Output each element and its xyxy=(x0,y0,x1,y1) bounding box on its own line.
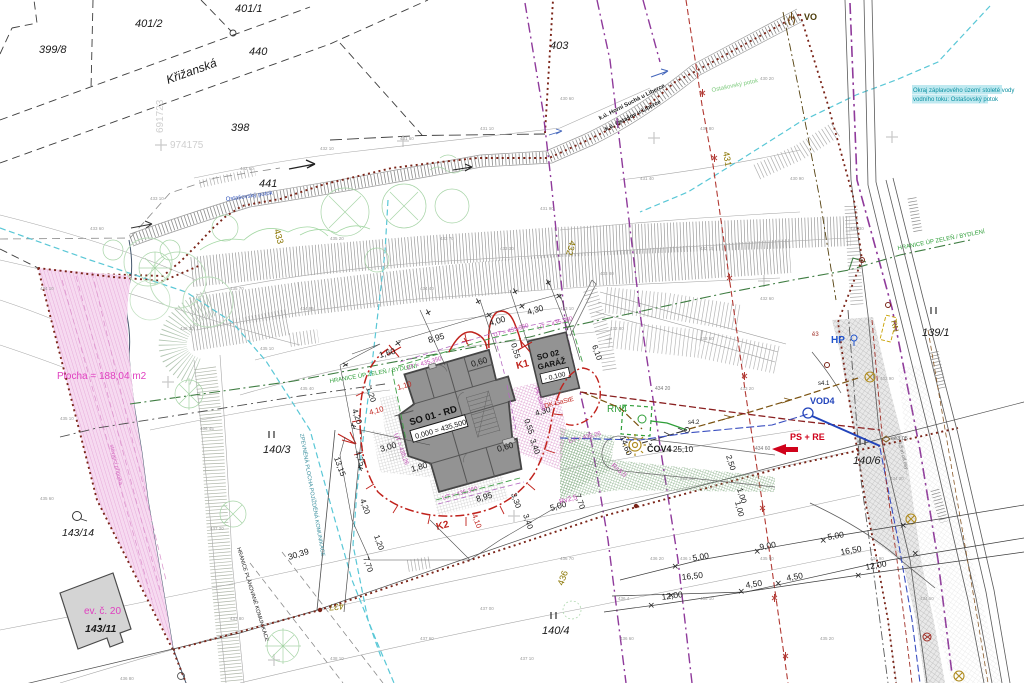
svg-text:ev. č. 20: ev. č. 20 xyxy=(84,606,121,617)
svg-text:435 60: 435 60 xyxy=(680,476,694,481)
svg-text:431 10: 431 10 xyxy=(480,126,494,131)
svg-text:434 40: 434 40 xyxy=(420,286,434,291)
svg-text:437 20: 437 20 xyxy=(210,526,224,531)
svg-text:436 4: 436 4 xyxy=(618,596,630,601)
svg-text:434 60: 434 60 xyxy=(755,446,771,452)
svg-text:PS + RE: PS + RE xyxy=(790,432,825,442)
svg-text:431 60: 431 60 xyxy=(400,136,414,141)
svg-text:140/3: 140/3 xyxy=(263,444,291,456)
svg-text:436 1: 436 1 xyxy=(680,556,692,561)
svg-text:434 50: 434 50 xyxy=(920,596,934,601)
svg-text:143/14: 143/14 xyxy=(62,527,94,539)
svg-text:433 10: 433 10 xyxy=(560,306,574,311)
svg-text:435 20: 435 20 xyxy=(330,236,344,241)
svg-text:432 60: 432 60 xyxy=(760,296,774,301)
svg-text:VOD4: VOD4 xyxy=(810,396,835,406)
svg-text:398: 398 xyxy=(231,122,250,134)
svg-text:435 10: 435 10 xyxy=(60,416,74,421)
svg-text:974175: 974175 xyxy=(170,140,204,151)
svg-text:VO: VO xyxy=(804,12,817,22)
svg-text:433 10: 433 10 xyxy=(150,196,164,201)
svg-text:Plocha = 188,04 m2: Plocha = 188,04 m2 xyxy=(57,371,147,382)
svg-text:432 15: 432 15 xyxy=(700,246,714,251)
svg-text:437 10: 437 10 xyxy=(520,656,534,661)
svg-text:vodního toku: Ostašovský potok: vodního toku: Ostašovský potok xyxy=(913,97,999,103)
svg-text:440: 440 xyxy=(249,46,268,58)
svg-text:437 80: 437 80 xyxy=(230,616,244,621)
svg-text:435 70: 435 70 xyxy=(230,286,244,291)
svg-text:438 10: 438 10 xyxy=(330,656,344,661)
svg-text:431 40: 431 40 xyxy=(640,176,654,181)
svg-text:434 20: 434 20 xyxy=(890,476,904,481)
svg-text:ě3: ě3 xyxy=(812,332,819,338)
svg-text:436 10: 436 10 xyxy=(180,326,194,331)
svg-text:437 60: 437 60 xyxy=(420,636,434,641)
svg-text:430 60: 430 60 xyxy=(560,96,574,101)
svg-text:431 90: 431 90 xyxy=(540,206,554,211)
svg-text:433 80: 433 80 xyxy=(600,271,614,276)
svg-text:433 60: 433 60 xyxy=(90,226,104,231)
svg-text:436 10: 436 10 xyxy=(700,596,714,601)
svg-text:435 80: 435 80 xyxy=(760,556,774,561)
svg-text:430 20: 430 20 xyxy=(760,76,774,81)
svg-text:430 90: 430 90 xyxy=(790,176,804,181)
svg-text:433 60: 433 60 xyxy=(700,336,714,341)
svg-text:140/4: 140/4 xyxy=(542,625,570,637)
svg-text:432 90: 432 90 xyxy=(880,376,894,381)
svg-text:431 30: 431 30 xyxy=(850,226,864,231)
svg-text:HP: HP xyxy=(831,335,845,346)
svg-text:432 80: 432 80 xyxy=(610,326,624,331)
svg-text:401/2: 401/2 xyxy=(135,18,163,30)
svg-text:435 60: 435 60 xyxy=(40,496,54,501)
svg-text:434 90: 434 90 xyxy=(870,556,884,561)
svg-text:436 70: 436 70 xyxy=(560,556,574,561)
svg-text:eě3,05: eě3,05 xyxy=(891,436,908,442)
svg-text:435 10: 435 10 xyxy=(260,346,274,351)
svg-text:436 80: 436 80 xyxy=(120,676,134,681)
svg-text:25,10: 25,10 xyxy=(673,445,694,454)
svg-text:ČOV4: ČOV4 xyxy=(647,443,672,454)
svg-text:399/8: 399/8 xyxy=(39,44,67,56)
svg-text:435 20: 435 20 xyxy=(820,636,834,641)
svg-text:430 80: 430 80 xyxy=(700,126,714,131)
svg-text:433 70: 433 70 xyxy=(440,236,454,241)
svg-text:441: 441 xyxy=(259,178,277,190)
svg-text:434 95: 434 95 xyxy=(300,306,314,311)
svg-text:403: 403 xyxy=(550,40,569,52)
svg-text:436 45: 436 45 xyxy=(200,426,214,431)
svg-text:434 10: 434 10 xyxy=(40,286,54,291)
svg-text:Okraj záplavového území stolet: Okraj záplavového území stoleté vody xyxy=(913,88,1014,94)
svg-text:432 60: 432 60 xyxy=(240,166,254,171)
svg-text:433 20: 433 20 xyxy=(740,386,754,391)
svg-text:401/1: 401/1 xyxy=(235,3,263,15)
svg-text:RN4: RN4 xyxy=(607,404,627,415)
svg-text:434 20: 434 20 xyxy=(655,386,671,392)
svg-text:436 60: 436 60 xyxy=(620,636,634,641)
svg-text:s4.1: s4.1 xyxy=(818,381,830,387)
svg-text:435 40: 435 40 xyxy=(300,386,314,391)
svg-text:143/11: 143/11 xyxy=(85,623,116,635)
svg-text:437 00: 437 00 xyxy=(480,606,494,611)
svg-text:139/1: 139/1 xyxy=(922,327,950,339)
svg-text:140/6: 140/6 xyxy=(853,455,881,467)
svg-text:432 10: 432 10 xyxy=(320,146,334,151)
svg-text:433 30: 433 30 xyxy=(500,246,514,251)
svg-text:691723: 691723 xyxy=(155,99,166,133)
svg-text:436 20: 436 20 xyxy=(650,556,664,561)
svg-text:s4.2: s4.2 xyxy=(688,420,700,426)
